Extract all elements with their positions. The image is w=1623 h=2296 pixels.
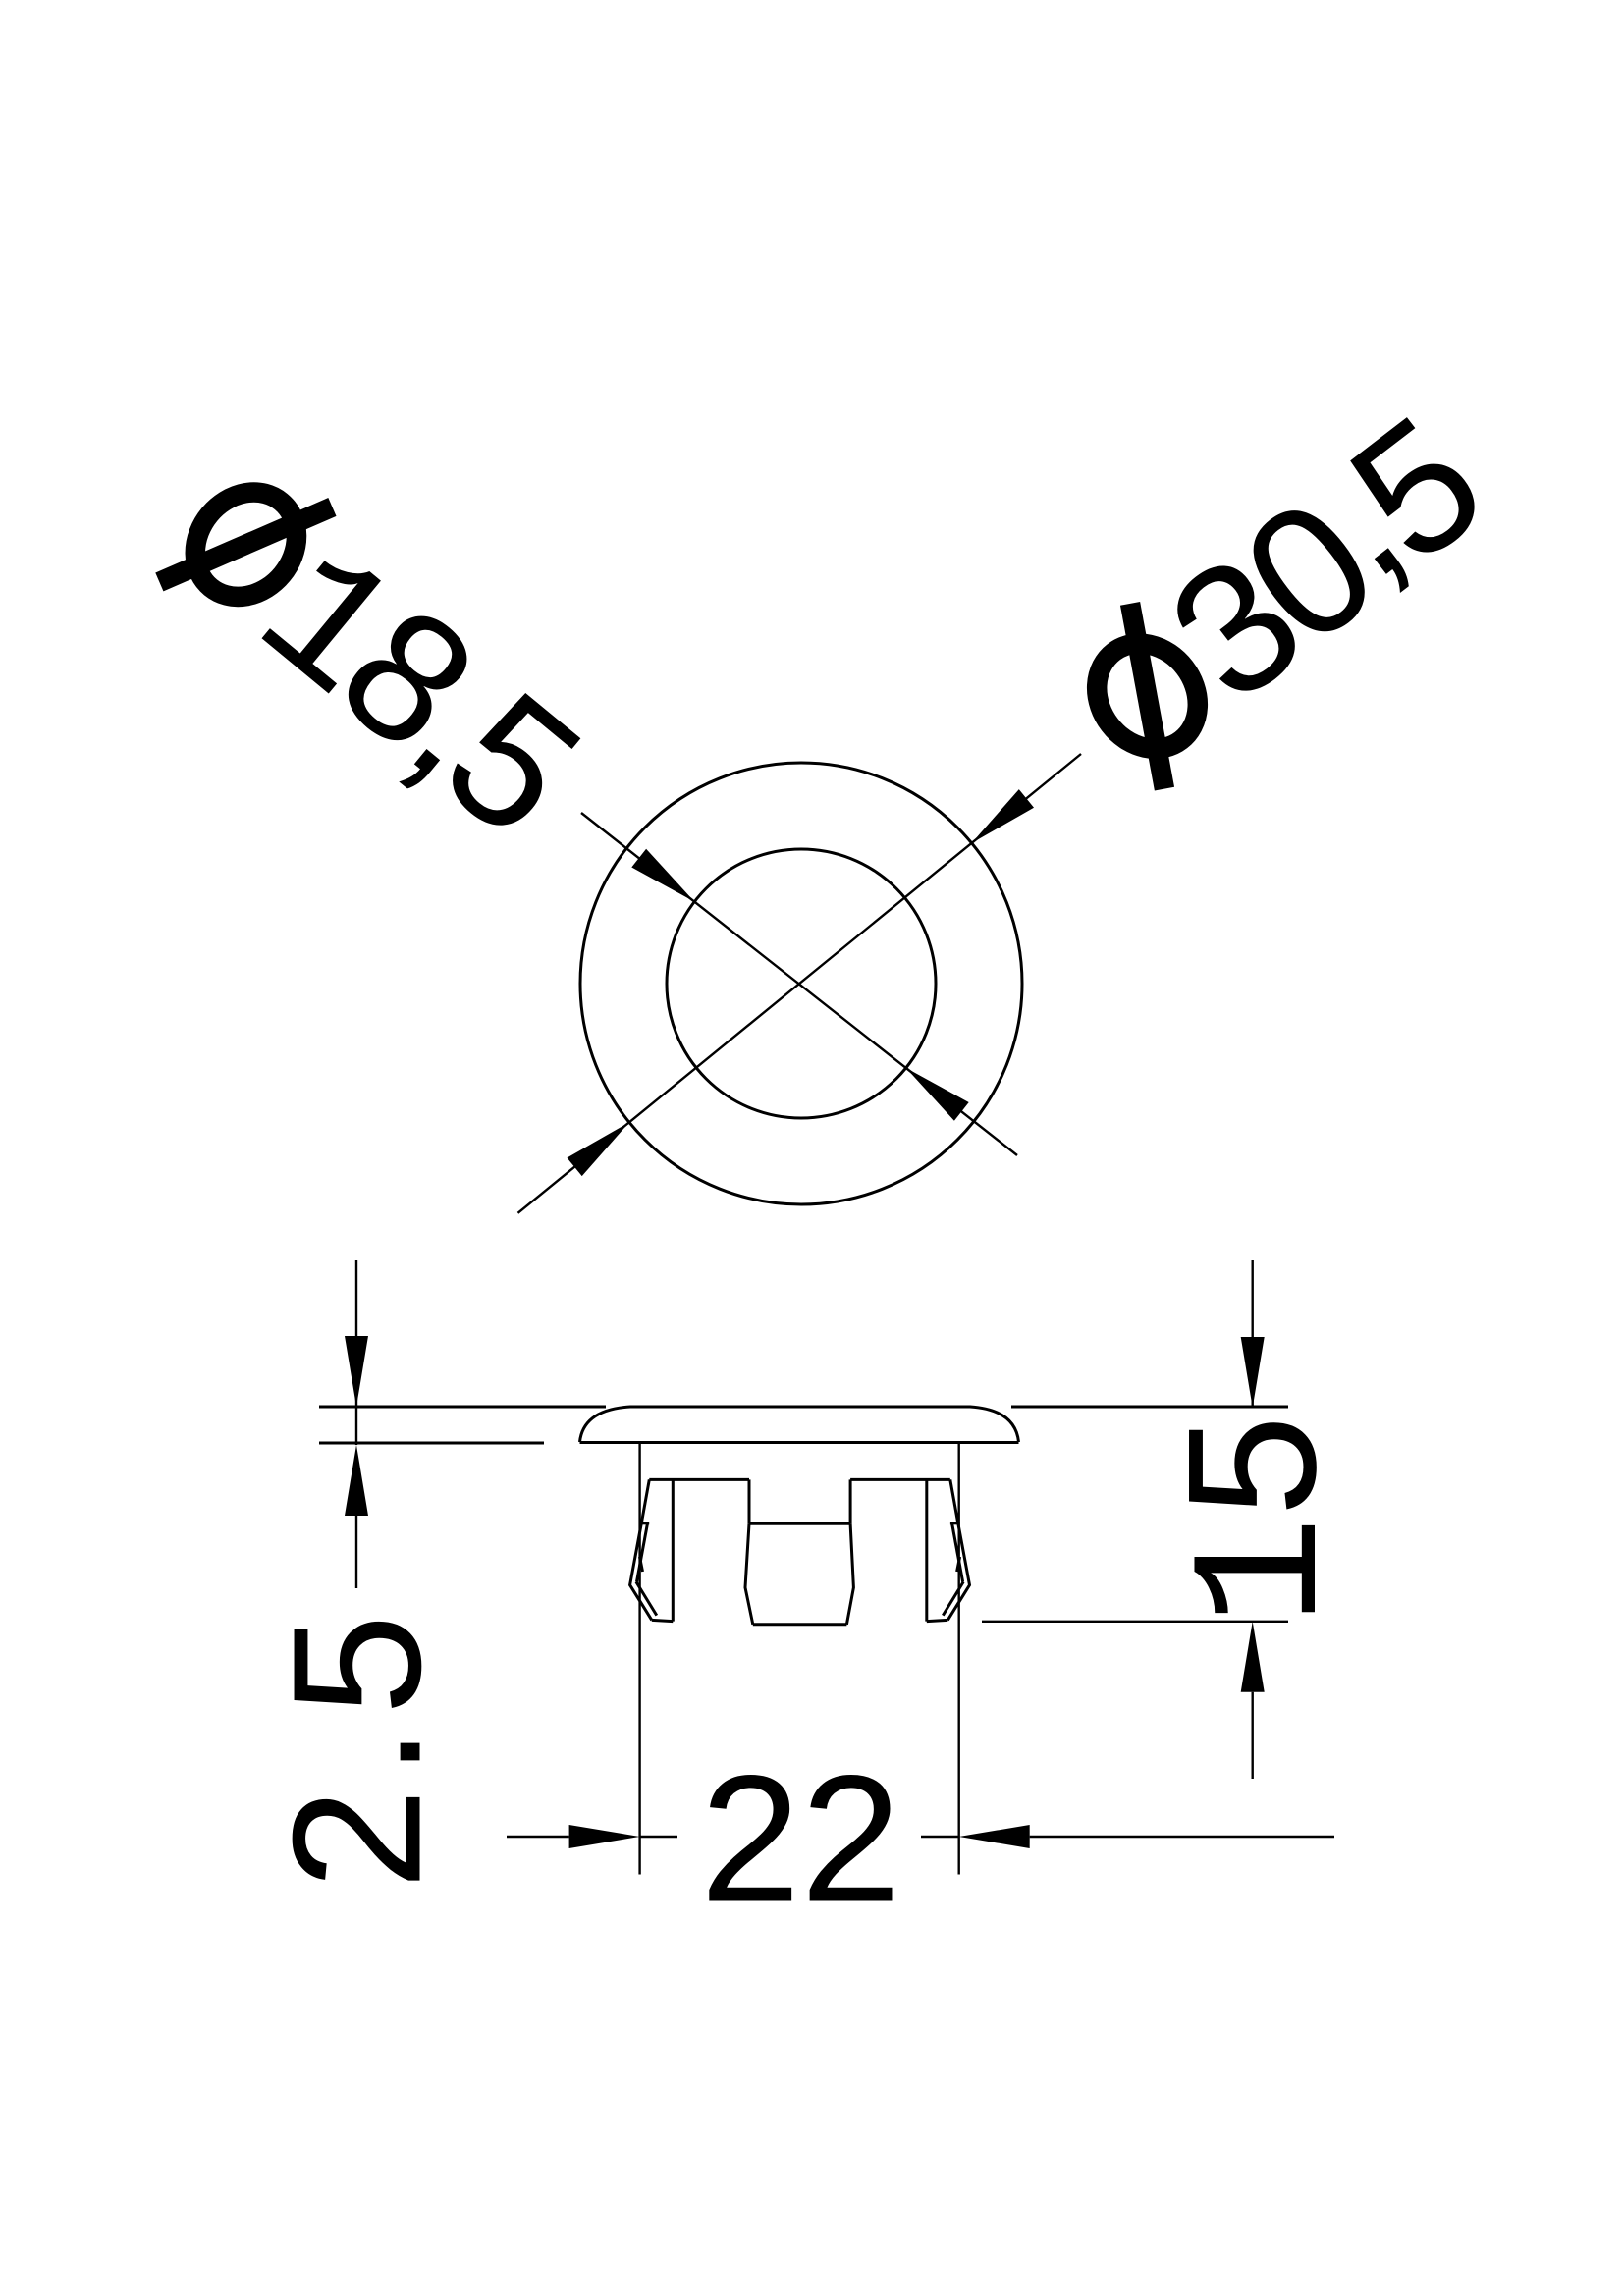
svg-text:15: 15 (1151, 1415, 1370, 1626)
svg-text:2.5: 2.5 (256, 1614, 460, 1890)
svg-text:18,5: 18,5 (216, 503, 617, 887)
svg-text:22: 22 (700, 1737, 901, 1940)
